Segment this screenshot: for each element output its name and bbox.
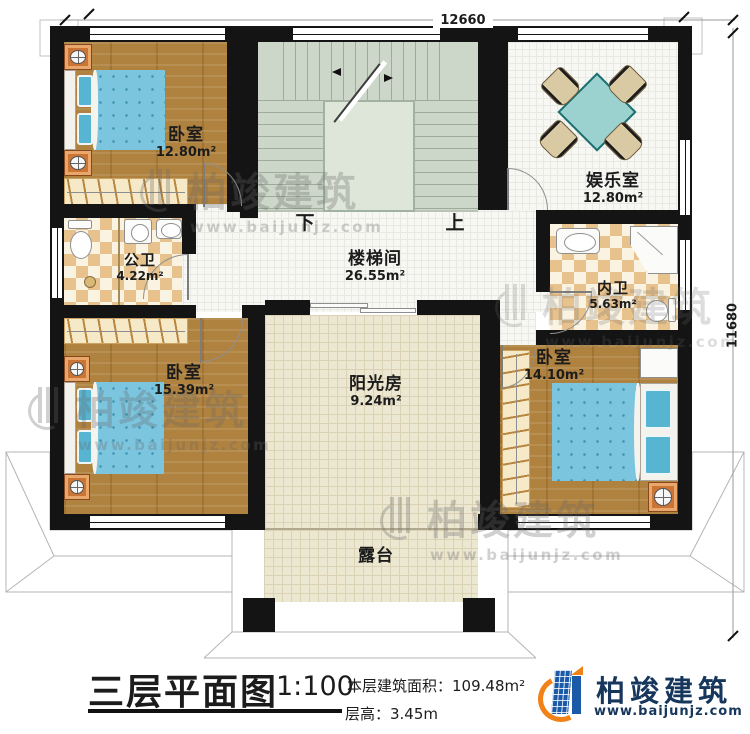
terrace-threshold xyxy=(265,528,478,530)
stair-arrow-left-icon xyxy=(332,68,341,76)
wardrobe xyxy=(64,178,188,205)
sliding-door xyxy=(360,308,416,313)
lamp-icon xyxy=(70,362,84,376)
room-label-bedroom-tl: 卧室 12.80m² xyxy=(130,125,242,161)
window xyxy=(678,240,692,310)
terrace-pillar xyxy=(243,598,275,632)
room-label-entertainment: 娱乐室 12.80m² xyxy=(557,171,669,207)
wall xyxy=(417,300,480,315)
wall xyxy=(265,300,310,315)
wall xyxy=(50,305,196,318)
room-label-bedroom-bl: 卧室 15.39m² xyxy=(128,363,240,399)
toilet-icon xyxy=(68,220,92,229)
window xyxy=(518,514,650,530)
title-underline xyxy=(88,709,342,713)
sink-icon xyxy=(156,219,182,239)
window xyxy=(50,228,64,298)
wall xyxy=(548,210,692,224)
wall xyxy=(478,26,508,210)
wall xyxy=(50,26,64,228)
room-label-stairwell: 楼梯间 26.55m² xyxy=(319,249,431,285)
wall xyxy=(248,312,265,530)
window xyxy=(90,514,225,530)
wall xyxy=(240,204,258,218)
room-label-ensuite-bath: 内卫 5.63m² xyxy=(557,279,669,311)
window xyxy=(518,26,648,42)
wall xyxy=(50,514,90,530)
wall xyxy=(650,514,692,530)
wall xyxy=(678,26,692,140)
wardrobe xyxy=(64,318,188,344)
lamp-icon xyxy=(70,50,86,64)
bed xyxy=(552,383,678,481)
wall xyxy=(50,298,64,530)
stair-up-label: 上 xyxy=(440,208,470,235)
floor-area-label: 本层建筑面积：109.48m² xyxy=(347,675,525,696)
stair-arrow-right-icon xyxy=(384,74,393,82)
room-label-sunroom: 阳光房 9.24m² xyxy=(320,374,432,410)
plan-title: 三层平面图 xyxy=(88,663,278,715)
lamp-icon xyxy=(70,156,86,170)
lamp-icon xyxy=(70,480,84,494)
dresser xyxy=(640,348,678,378)
wall xyxy=(536,210,550,292)
lamp-icon xyxy=(654,488,672,506)
wall xyxy=(480,300,500,530)
toilet-icon xyxy=(668,298,676,322)
window xyxy=(293,26,440,42)
floor-height-label: 层高：3.45m xyxy=(345,703,438,724)
sink-icon xyxy=(556,228,600,254)
stair-down-label: 下 xyxy=(290,208,320,235)
nightstand xyxy=(648,482,678,512)
nightstand xyxy=(64,150,92,176)
nightstand xyxy=(64,44,92,70)
window xyxy=(90,26,225,42)
dimension-right: 11680 xyxy=(726,293,741,359)
sunroom-floor xyxy=(265,315,480,530)
dimension-top: 12660 xyxy=(433,13,493,28)
corridor-floor-branch xyxy=(500,312,536,346)
brand-logo-icon xyxy=(537,664,591,726)
wall xyxy=(50,204,196,218)
washing-machine-icon xyxy=(124,219,152,244)
brand-url: www.baijunjz.com xyxy=(594,704,743,719)
floor-plan-canvas: 柏竣建筑 www.baijunjz.com 柏竣建筑 www.baijunjz.… xyxy=(0,0,750,734)
window xyxy=(678,140,692,215)
wall xyxy=(182,218,196,254)
stair-treads-right xyxy=(415,100,478,211)
stair-treads-left xyxy=(258,100,323,211)
nightstand xyxy=(64,356,90,382)
room-label-public-bath: 公卫 4.22m² xyxy=(84,251,196,283)
room-label-terrace: 露台 xyxy=(320,546,432,566)
nightstand xyxy=(64,474,90,500)
terrace-pillar xyxy=(463,598,495,632)
room-label-bedroom-br: 卧室 14.10m² xyxy=(498,348,610,384)
plan-scale: 1:100 xyxy=(276,671,354,702)
